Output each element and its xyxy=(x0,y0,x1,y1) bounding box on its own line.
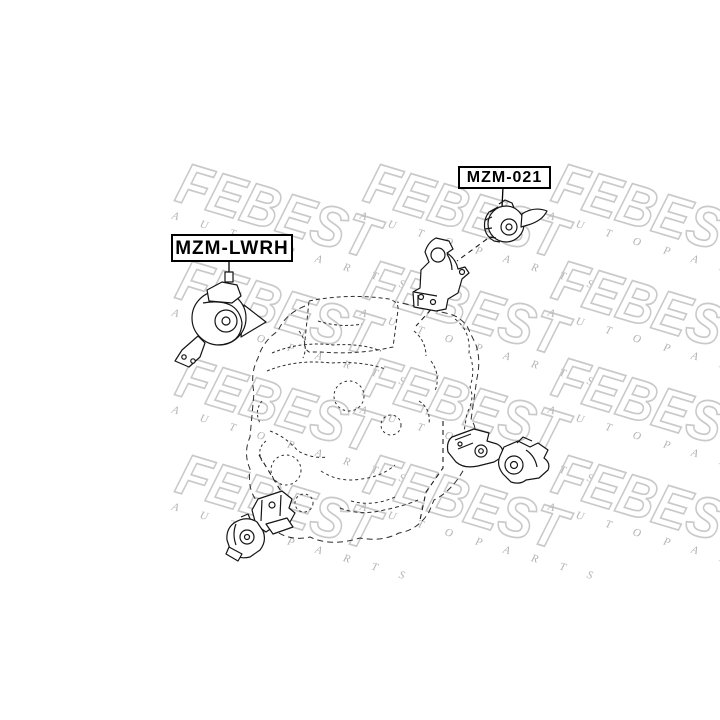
part-mzm021-bushing xyxy=(485,200,548,242)
part-engine-bracket xyxy=(413,238,469,311)
part-rear-bracket xyxy=(448,429,503,467)
parts-diagram xyxy=(0,0,720,720)
part-number-label-mzm-lwrh[interactable]: MZM-LWRH xyxy=(171,234,293,262)
part-number-label-mzm021[interactable]: MZM-021 xyxy=(458,166,551,189)
catalog-diagram-page: FEBESTA U T OP A R T SFEBESTA U T OP A R… xyxy=(0,0,720,720)
part-mzm-lwrh-mount xyxy=(175,272,266,367)
part-rear-mount xyxy=(499,437,549,483)
